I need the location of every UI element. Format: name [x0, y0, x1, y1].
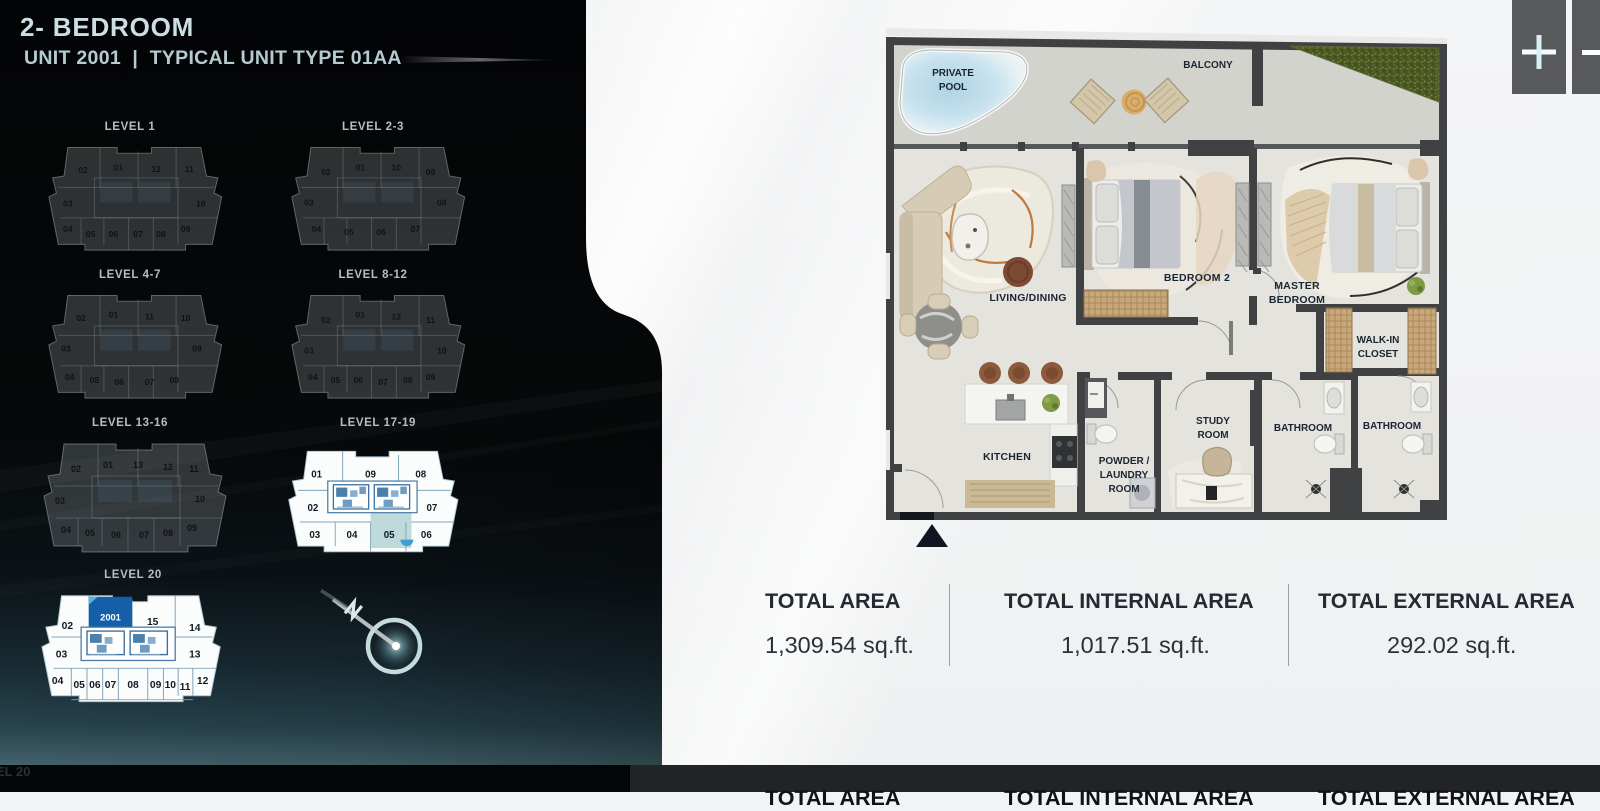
svg-text:09: 09 [426, 372, 436, 382]
svg-text:08: 08 [415, 469, 426, 480]
svg-text:05: 05 [90, 375, 100, 385]
svg-text:BATHROOM: BATHROOM [1363, 421, 1421, 432]
svg-text:04: 04 [65, 372, 75, 382]
svg-text:07: 07 [378, 377, 388, 387]
svg-text:08: 08 [163, 528, 173, 538]
svg-text:BALCONY: BALCONY [1183, 60, 1233, 71]
svg-text:STUDY: STUDY [1196, 416, 1230, 427]
svg-text:10: 10 [165, 680, 177, 691]
svg-text:07: 07 [139, 530, 149, 540]
svg-text:06: 06 [354, 375, 364, 385]
svg-text:15: 15 [147, 617, 159, 628]
svg-text:POOL: POOL [939, 82, 967, 93]
svg-text:02: 02 [307, 503, 318, 514]
svg-text:07: 07 [105, 680, 117, 691]
svg-text:01: 01 [311, 469, 322, 480]
svg-text:11: 11 [145, 311, 154, 321]
svg-text:08: 08 [156, 229, 166, 239]
svg-text:ROOM: ROOM [1108, 484, 1139, 495]
svg-text:06: 06 [114, 377, 124, 387]
svg-text:WALK-IN: WALK-IN [1357, 335, 1400, 346]
svg-text:02: 02 [62, 621, 74, 632]
svg-text:10: 10 [437, 345, 447, 355]
svg-text:06: 06 [111, 530, 121, 540]
svg-text:LIVING/DINING: LIVING/DINING [989, 292, 1066, 304]
svg-text:LEVEL 17-19: LEVEL 17-19 [340, 417, 416, 429]
svg-text:07: 07 [133, 229, 143, 239]
svg-text:12: 12 [163, 462, 173, 472]
svg-text:07: 07 [145, 377, 155, 387]
svg-text:CLOSET: CLOSET [1358, 349, 1399, 360]
svg-text:ROOM: ROOM [1197, 430, 1228, 441]
svg-text:05: 05 [384, 530, 395, 541]
svg-text:07: 07 [411, 224, 421, 234]
svg-text:03: 03 [56, 650, 68, 661]
svg-text:02: 02 [321, 167, 331, 177]
svg-text:01: 01 [103, 460, 113, 470]
svg-text:LEVEL 13-16: LEVEL 13-16 [92, 417, 168, 429]
svg-text:09: 09 [192, 344, 202, 354]
svg-text:2001: 2001 [100, 612, 121, 622]
svg-text:BEDROOM 2: BEDROOM 2 [1164, 272, 1230, 284]
svg-text:08: 08 [437, 197, 447, 207]
svg-text:2- BEDROOM: 2- BEDROOM [20, 12, 194, 42]
svg-text:09: 09 [187, 523, 197, 533]
svg-text:11: 11 [189, 464, 199, 474]
svg-text:09: 09 [181, 224, 191, 234]
svg-text:08: 08 [403, 375, 413, 385]
svg-text:08: 08 [127, 680, 139, 691]
svg-text:01: 01 [355, 162, 365, 172]
svg-text:12: 12 [392, 311, 402, 321]
svg-text:01: 01 [113, 162, 123, 172]
svg-text:05: 05 [331, 375, 341, 385]
svg-text:LEVEL 8-12: LEVEL 8-12 [338, 269, 407, 281]
svg-text:13: 13 [133, 460, 143, 470]
svg-text:02: 02 [76, 313, 86, 323]
svg-text:09: 09 [150, 680, 162, 691]
svg-text:09: 09 [426, 167, 436, 177]
svg-text:12: 12 [197, 676, 209, 687]
svg-text:06: 06 [376, 227, 386, 237]
svg-text:LEVEL 20: LEVEL 20 [104, 569, 162, 581]
svg-text:04: 04 [63, 224, 73, 234]
svg-text:04: 04 [308, 372, 318, 382]
svg-text:12: 12 [151, 164, 161, 174]
svg-text:03: 03 [304, 345, 314, 355]
svg-text:04: 04 [347, 530, 358, 541]
svg-text:05: 05 [85, 528, 95, 538]
svg-text:10: 10 [196, 198, 206, 208]
svg-text:13: 13 [189, 650, 201, 661]
svg-text:04: 04 [61, 525, 71, 535]
svg-text:14: 14 [189, 623, 201, 634]
svg-text:LAUNDRY: LAUNDRY [1100, 470, 1149, 481]
svg-text:LEVEL 1: LEVEL 1 [105, 121, 156, 133]
svg-text:UNIT 2001 | TYPICAL UNIT TYP: UNIT 2001 | TYPICAL UNIT TYPE 01AA [24, 47, 402, 69]
svg-text:LEVEL 4-7: LEVEL 4-7 [99, 269, 161, 281]
svg-text:11: 11 [180, 682, 191, 693]
svg-text:10: 10 [195, 494, 205, 504]
svg-text:PRIVATE: PRIVATE [932, 68, 974, 79]
svg-text:03: 03 [55, 496, 65, 506]
svg-text:POWDER /: POWDER / [1099, 456, 1150, 467]
svg-text:06: 06 [89, 680, 101, 691]
svg-text:05: 05 [73, 680, 85, 691]
svg-text:03: 03 [304, 197, 314, 207]
svg-text:05: 05 [86, 229, 96, 239]
svg-text:08: 08 [169, 375, 179, 385]
svg-text:LEVEL 2-3: LEVEL 2-3 [342, 121, 404, 133]
svg-text:02: 02 [78, 165, 88, 175]
svg-text:03: 03 [309, 530, 320, 541]
svg-text:02: 02 [321, 315, 331, 325]
svg-text:10: 10 [181, 313, 191, 323]
svg-text:11: 11 [185, 164, 194, 174]
svg-text:04: 04 [52, 676, 64, 687]
svg-text:03: 03 [63, 198, 73, 208]
svg-text:11: 11 [426, 315, 435, 325]
svg-text:07: 07 [427, 503, 438, 514]
svg-text:02: 02 [71, 464, 81, 474]
svg-text:MASTER: MASTER [1274, 280, 1320, 292]
svg-text:06: 06 [109, 229, 119, 239]
svg-text:03: 03 [61, 344, 71, 354]
svg-text:05: 05 [344, 227, 354, 237]
svg-text:06: 06 [421, 530, 432, 541]
svg-text:KITCHEN: KITCHEN [983, 451, 1031, 463]
svg-text:01: 01 [355, 309, 365, 319]
svg-text:04: 04 [312, 224, 322, 234]
svg-text:01: 01 [109, 309, 119, 319]
svg-text:BATHROOM: BATHROOM [1274, 423, 1332, 434]
svg-text:BEDROOM: BEDROOM [1269, 294, 1325, 306]
svg-text:10: 10 [392, 162, 402, 172]
svg-text:09: 09 [365, 469, 376, 480]
